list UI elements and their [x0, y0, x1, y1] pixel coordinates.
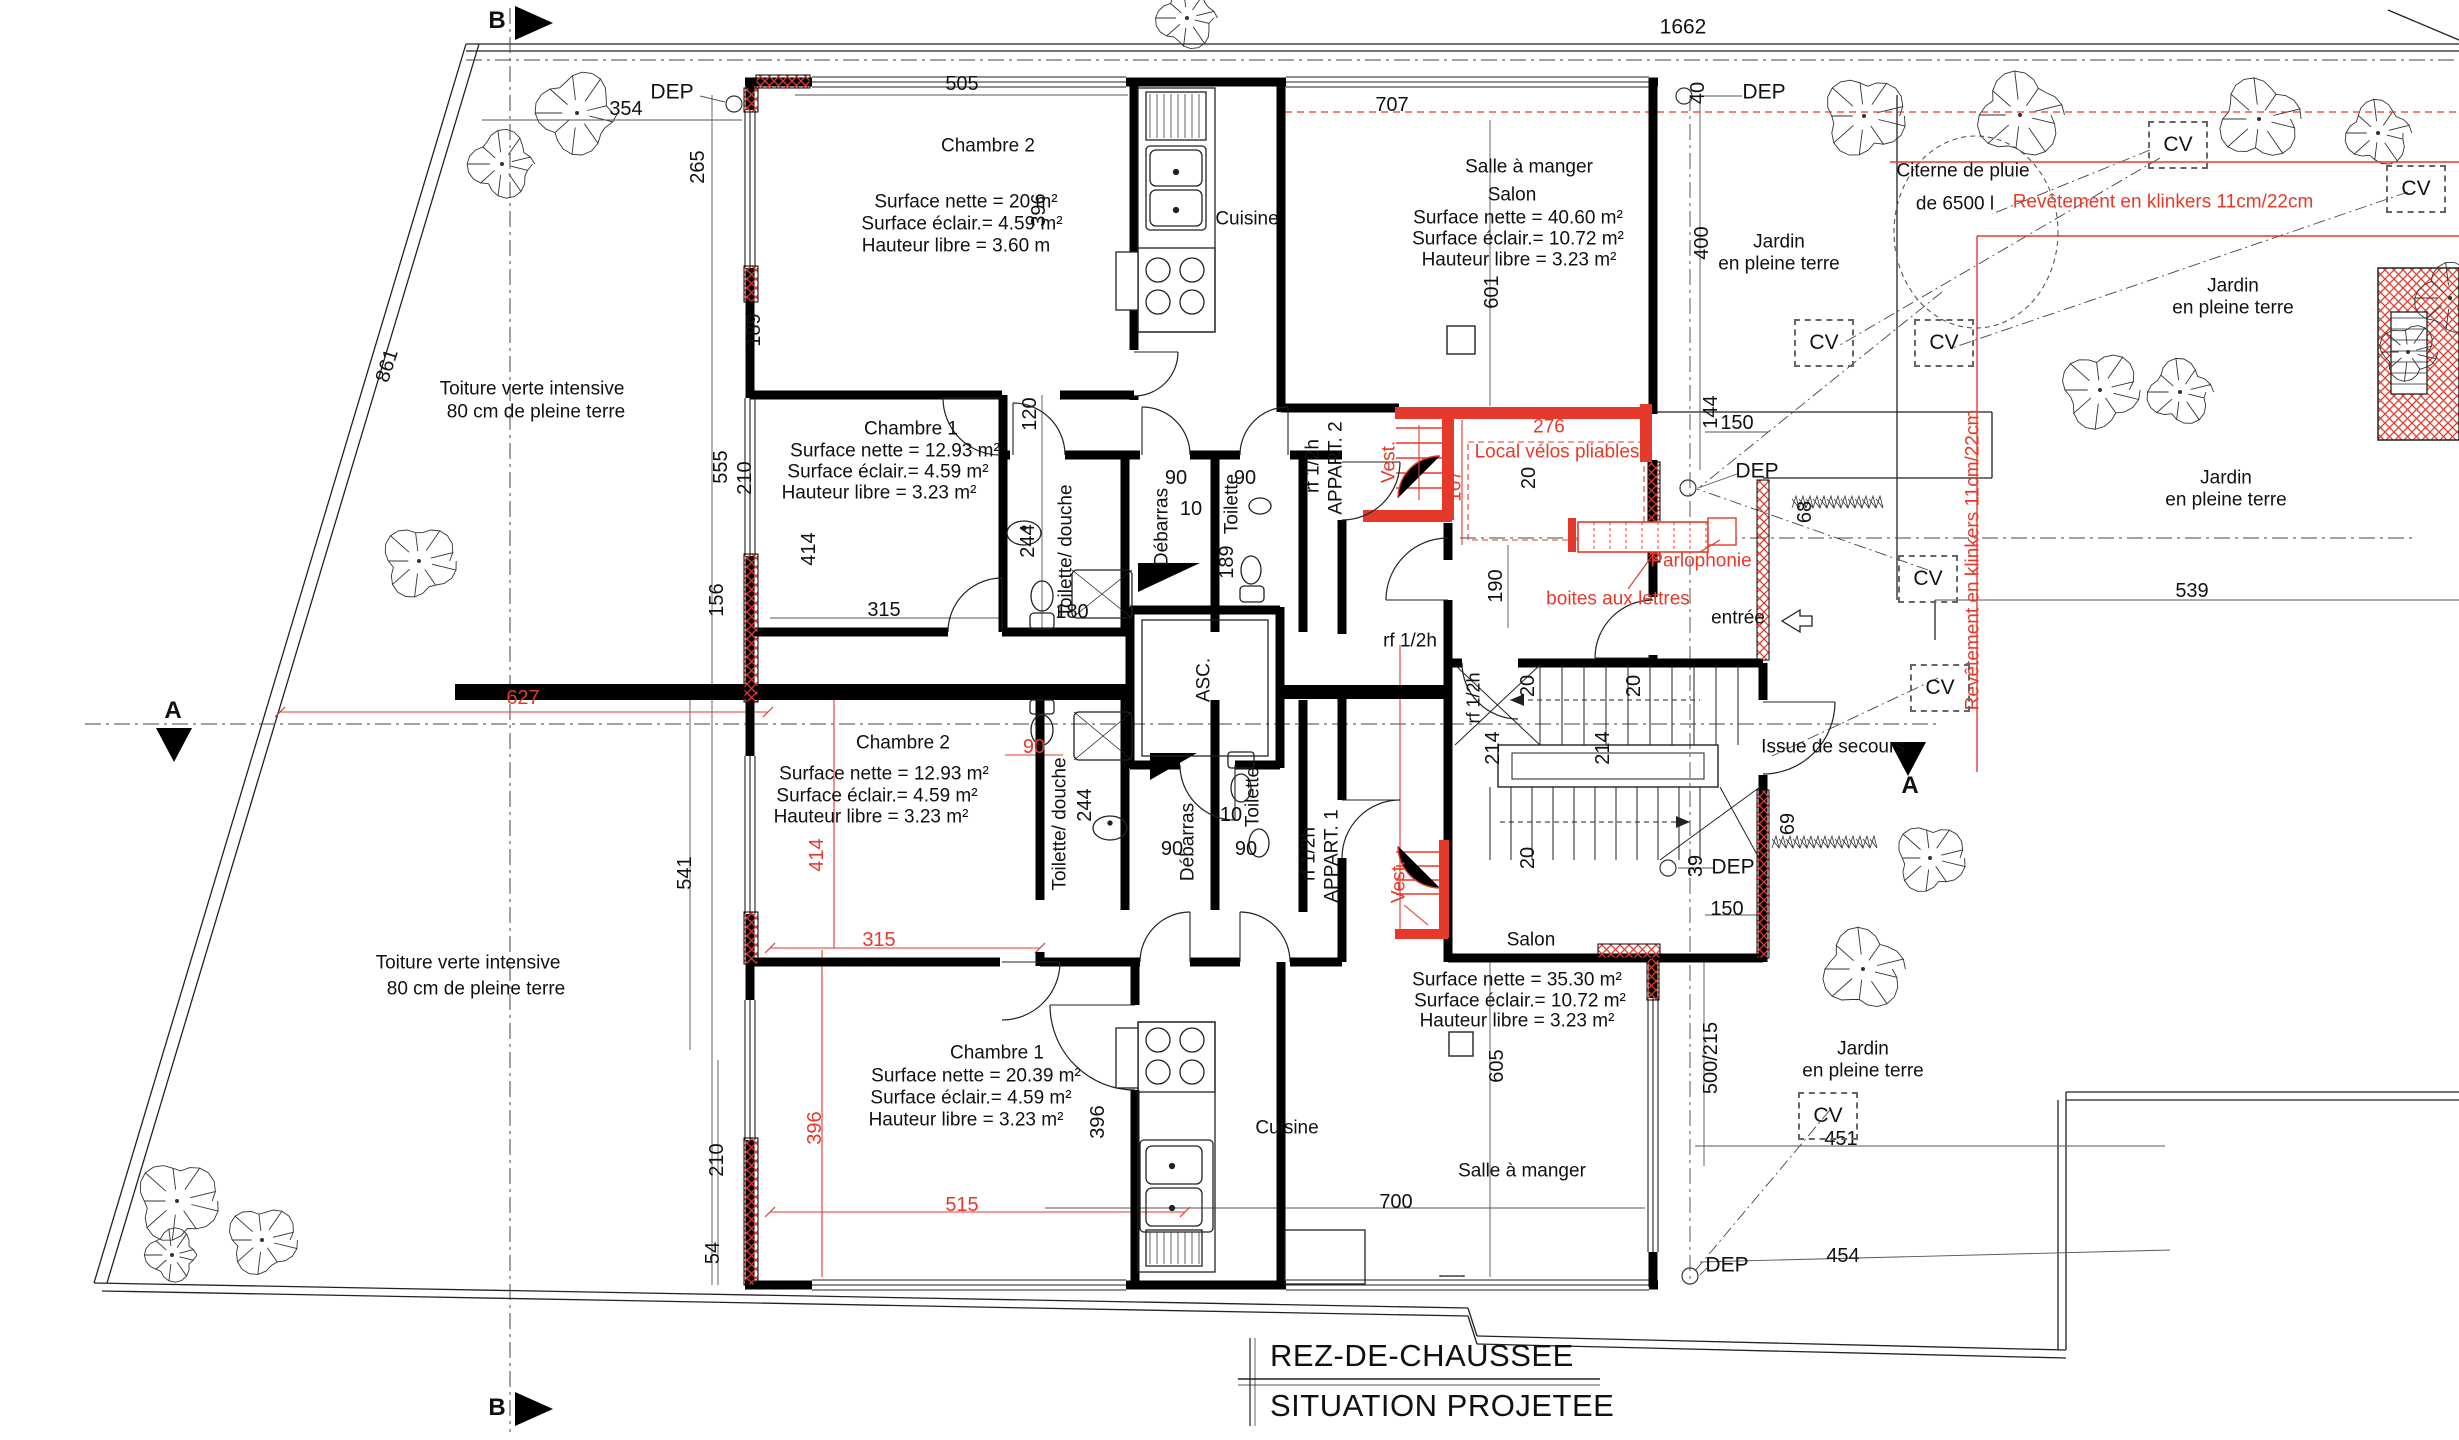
plan-label: Toiture verte intensive: [440, 380, 625, 401]
plan-label: 210: [707, 1143, 729, 1176]
plan-label: Hauteur libre = 3.23 m²: [774, 808, 969, 829]
plan-label: Hauteur libre = 3.23 m²: [1420, 1012, 1615, 1033]
plan-label: Chambre 2: [941, 137, 1035, 158]
plan-label: Surface nette = 40.60 m²: [1413, 209, 1623, 230]
plan-label: 1662: [1660, 17, 1707, 40]
plan-label: Chambre 1: [950, 1044, 1044, 1065]
plan-label: Surface éclair.= 4.59 m²: [787, 463, 988, 484]
plan-label: rf 1/2h: [1300, 827, 1321, 881]
plan-label: 90: [1161, 839, 1183, 861]
plan-label: entrée: [1711, 609, 1765, 630]
plan-label: 10: [1220, 805, 1242, 827]
plan-label: DEP: [650, 82, 693, 105]
plan-label: 20: [1518, 847, 1540, 869]
plan-label: 189: [744, 313, 766, 346]
plan-label: Issue de secours: [1761, 738, 1905, 759]
cv-marker: CV: [2148, 121, 2208, 169]
plan-label: 20: [1518, 675, 1540, 697]
plan-label: DEP: [1705, 1255, 1748, 1278]
plan-label: 515: [945, 1195, 978, 1217]
plan-label: APPART. 1: [1323, 809, 1344, 902]
plan-label: DEP: [1742, 82, 1785, 105]
plan-label: 541: [675, 856, 697, 889]
plan-label: rf 1/2h: [1464, 672, 1483, 723]
plan-label: Hauteur libre = 3.23 m²: [782, 484, 977, 505]
plan-label: 190: [1486, 569, 1508, 602]
title-block: REZ-DE-CHAUSSEE SITUATION PROJETEE: [1262, 1336, 1622, 1424]
plan-label: 10: [1180, 499, 1202, 521]
plan-label: Chambre 2: [856, 734, 950, 755]
plan-label: 276: [1533, 418, 1565, 439]
plan-label: Salon: [1507, 931, 1556, 952]
plan-label: 90: [1235, 839, 1257, 861]
plan-label: 605: [1487, 1049, 1509, 1082]
cv-marker: CV: [1798, 1092, 1858, 1140]
plan-label: 68: [1795, 501, 1817, 523]
plan-label: Jardin: [2200, 469, 2252, 490]
plan-label: en pleine terre: [1802, 1062, 1923, 1083]
plan-label: 214: [1593, 731, 1615, 764]
plan-label: Surface nette = 20.39 m²: [871, 1067, 1081, 1088]
plan-label: 265: [688, 150, 710, 183]
plan-label: APPART. 2: [1327, 421, 1348, 514]
plan-label: Surface éclair.= 4.59 m²: [870, 1089, 1071, 1110]
plan-label: Débarras: [1153, 488, 1174, 566]
plan-label: Hauteur libre = 3.60 m: [862, 237, 1051, 258]
plan-label: en pleine terre: [2172, 299, 2293, 320]
cv-marker: CV: [1794, 319, 1854, 367]
plan-label: 80 cm de pleine terre: [447, 403, 626, 424]
plan-label: 627: [506, 688, 539, 710]
plan-label: Surface nette = 35.30 m²: [1412, 971, 1622, 992]
plan-label: Hauteur libre = 3.23 m²: [1422, 251, 1617, 272]
plan-label: Chambre 1: [864, 420, 958, 441]
plan-label: Toilette: [1244, 767, 1265, 827]
plan-label: 39: [1686, 855, 1708, 877]
plan-label: Jardin: [2207, 277, 2259, 298]
plan-label: 180: [1055, 602, 1088, 624]
plan-label: 500/215: [1701, 1022, 1723, 1094]
plan-label: Revêtement en klinkers 11cm/22cm: [2013, 193, 2314, 214]
plan-label: 150: [1720, 413, 1753, 435]
plan-label: Jardin: [1837, 1040, 1889, 1061]
cv-marker: CV: [1910, 664, 1970, 712]
plan-label: Jardin: [1753, 233, 1805, 254]
plan-label: 414: [799, 532, 821, 565]
plan-label: 120: [1020, 397, 1042, 430]
plan-label: 396: [1088, 1105, 1110, 1138]
plan-label: en pleine terre: [2165, 491, 2286, 512]
plan-label: Citerne de pluie: [1896, 162, 2029, 183]
plan-label: Cuisine: [1215, 210, 1278, 231]
plan-label: Surface nette = 12.93 m²: [779, 765, 989, 786]
plan-label: Surface éclair.= 4.59 m²: [776, 787, 977, 808]
plan-label: 396: [805, 1111, 827, 1144]
cv-marker: CV: [1898, 555, 1958, 603]
plan-label: 555: [711, 450, 733, 483]
plan-label: 20: [1519, 467, 1541, 489]
plan-label: Toilette/ douche: [1051, 757, 1072, 890]
plan-label: en pleine terre: [1718, 255, 1839, 276]
plan-label: 210: [735, 461, 757, 494]
plan-label: ASC.: [1195, 658, 1216, 702]
plan-label: 189: [1217, 545, 1239, 578]
plan-label: 539: [2175, 581, 2208, 603]
plan-label: 20: [1624, 675, 1646, 697]
plan-label: Vest.: [1380, 441, 1401, 483]
plan-label: 700: [1379, 1192, 1412, 1214]
plan-label: Cuisine: [1255, 1119, 1318, 1140]
cv-marker: CV: [1914, 319, 1974, 367]
plan-label: 244: [1075, 788, 1097, 821]
plan-label: Local vélos pliables: [1475, 443, 1640, 464]
plan-label: 354: [609, 99, 642, 121]
plan-label: 244: [1018, 524, 1040, 557]
plan-label: 707: [1375, 95, 1408, 117]
plan-label: B: [488, 1395, 505, 1421]
plan-label: 400: [1692, 226, 1714, 259]
plan-label: 156: [707, 583, 729, 616]
plan-label: 505: [945, 74, 978, 96]
plan-label: 54: [703, 1242, 725, 1264]
drawing-title: REZ-DE-CHAUSSEE: [1262, 1336, 1622, 1380]
plan-label: DEP: [1711, 857, 1754, 880]
plan-label: Salle à manger: [1458, 1162, 1586, 1183]
plan-label: Salle à manger: [1465, 158, 1593, 179]
plan-label: 214: [1483, 731, 1505, 764]
plan-label: Surface éclair.= 10.72 m²: [1412, 230, 1624, 251]
plan-label: Surface éclair.= 10.72 m²: [1414, 992, 1626, 1013]
plan-label: 601: [1482, 275, 1504, 308]
cv-marker: CV: [2386, 165, 2446, 213]
plan-label: 90: [1234, 468, 1256, 490]
plan-label: Toiture verte intensive: [376, 954, 561, 975]
plan-label: 167: [1446, 470, 1467, 502]
plan-label: Salon: [1488, 186, 1537, 207]
plan-label: 454: [1826, 1246, 1859, 1268]
plan-label: 396: [1029, 193, 1051, 226]
plan-label: 90: [1023, 737, 1045, 759]
plan-label: 69: [1778, 813, 1800, 835]
plan-label: rf 1/2h: [1304, 439, 1325, 493]
plan-label: Parlophonie: [1650, 552, 1751, 573]
plan-label: 315: [867, 600, 900, 622]
plan-label: A: [164, 698, 181, 724]
plan-label: Toilette/ douche: [1057, 484, 1078, 617]
floor-plan-canvas: BBAA1662DEP354505707Chambre 2Surface net…: [0, 0, 2459, 1440]
plan-label: 80 cm de pleine terre: [387, 980, 566, 1001]
plan-label: boites aux lettres: [1546, 590, 1690, 611]
plan-label: A: [1901, 773, 1918, 799]
plan-label: rf 1/2h: [1383, 632, 1437, 653]
plan-label: Surface nette = 12.93 m²: [790, 442, 1000, 463]
plan-label: Vest.: [1390, 861, 1411, 903]
plan-label: B: [488, 8, 505, 34]
plan-label: 40: [1688, 82, 1710, 104]
plan-label: 90: [1165, 468, 1187, 490]
plan-label: 150: [1710, 899, 1743, 921]
plan-label: 414: [807, 838, 829, 871]
plan-label: de 6500 l: [1916, 195, 1994, 216]
drawing-subtitle: SITUATION PROJETEE: [1262, 1380, 1622, 1424]
plan-label: DEP: [1735, 461, 1778, 484]
plan-label: 315: [862, 930, 895, 952]
plan-label: Hauteur libre = 3.23 m²: [869, 1111, 1064, 1132]
